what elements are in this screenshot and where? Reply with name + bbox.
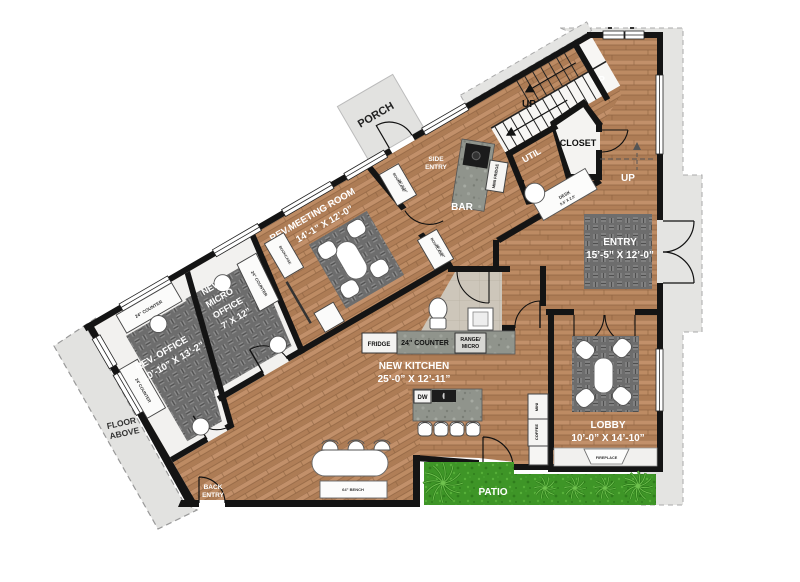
svg-text:MINI: MINI bbox=[534, 403, 539, 411]
svg-text:RANGE/: RANGE/ bbox=[460, 337, 481, 343]
svg-text:BACK: BACK bbox=[204, 484, 223, 491]
svg-text:ENTRY: ENTRY bbox=[425, 164, 447, 171]
svg-text:CLOSET: CLOSET bbox=[560, 138, 597, 148]
svg-text:10’-0” X 14’-10”: 10’-0” X 14’-10” bbox=[571, 433, 644, 444]
svg-text:BAR: BAR bbox=[451, 202, 473, 213]
svg-text:ENTRY: ENTRY bbox=[603, 237, 637, 248]
svg-text:FIREPLACE: FIREPLACE bbox=[596, 456, 618, 460]
svg-text:FRIDGE: FRIDGE bbox=[368, 342, 391, 348]
svg-text:UP: UP bbox=[522, 99, 536, 110]
svg-text:NEW KITCHEN: NEW KITCHEN bbox=[379, 361, 450, 372]
svg-text:ENTRY: ENTRY bbox=[202, 492, 224, 499]
svg-text:SIDE: SIDE bbox=[428, 156, 444, 163]
svg-text:DW: DW bbox=[418, 395, 428, 401]
svg-text:COFFEE: COFFEE bbox=[534, 424, 539, 441]
svg-text:LOBBY: LOBBY bbox=[591, 420, 626, 431]
svg-text:UP: UP bbox=[621, 173, 635, 184]
svg-text:24" COUNTER: 24" COUNTER bbox=[401, 340, 449, 347]
svg-text:MICRO: MICRO bbox=[462, 344, 479, 350]
svg-text:15’-5” X 12’-0”: 15’-5” X 12’-0” bbox=[586, 250, 654, 261]
svg-text:PATIO: PATIO bbox=[478, 487, 507, 498]
svg-text:25’-0” X 12’-11”: 25’-0” X 12’-11” bbox=[378, 374, 451, 385]
svg-text:64” BENCH: 64” BENCH bbox=[342, 487, 364, 492]
